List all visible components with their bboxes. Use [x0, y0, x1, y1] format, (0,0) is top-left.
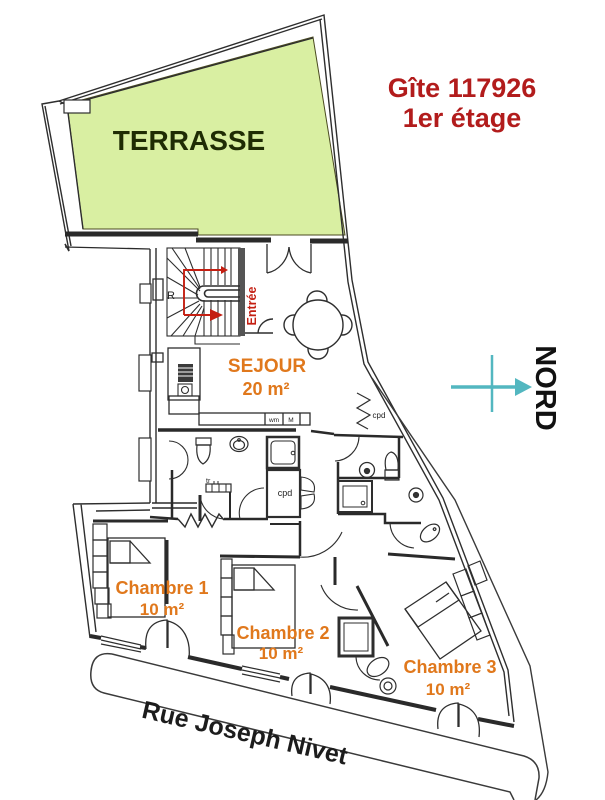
svg-text:1er étage: 1er étage — [403, 103, 522, 133]
svg-text:NORD: NORD — [529, 345, 561, 430]
svg-text:TERRASSE: TERRASSE — [113, 125, 265, 156]
svg-text:10 m²: 10 m² — [426, 680, 471, 699]
svg-text:10 m²: 10 m² — [259, 644, 304, 663]
svg-text:R: R — [167, 290, 175, 302]
svg-text:SEJOUR: SEJOUR — [228, 356, 306, 377]
svg-text:wm: wm — [268, 417, 279, 424]
svg-text:Chambre 2: Chambre 2 — [236, 623, 329, 643]
svg-text:M: M — [288, 417, 293, 424]
svg-text:cpd: cpd — [373, 411, 386, 420]
svg-text:Chambre 1: Chambre 1 — [115, 578, 208, 598]
svg-text:tr: tr — [206, 478, 211, 485]
svg-text:20 m²: 20 m² — [242, 379, 289, 399]
svg-text:cpd: cpd — [278, 488, 293, 498]
svg-text:Gîte 117926: Gîte 117926 — [388, 73, 537, 103]
svg-text:Entrée: Entrée — [245, 287, 259, 326]
svg-text:10 m²: 10 m² — [140, 600, 185, 619]
svg-text:Chambre 3: Chambre 3 — [403, 657, 496, 677]
